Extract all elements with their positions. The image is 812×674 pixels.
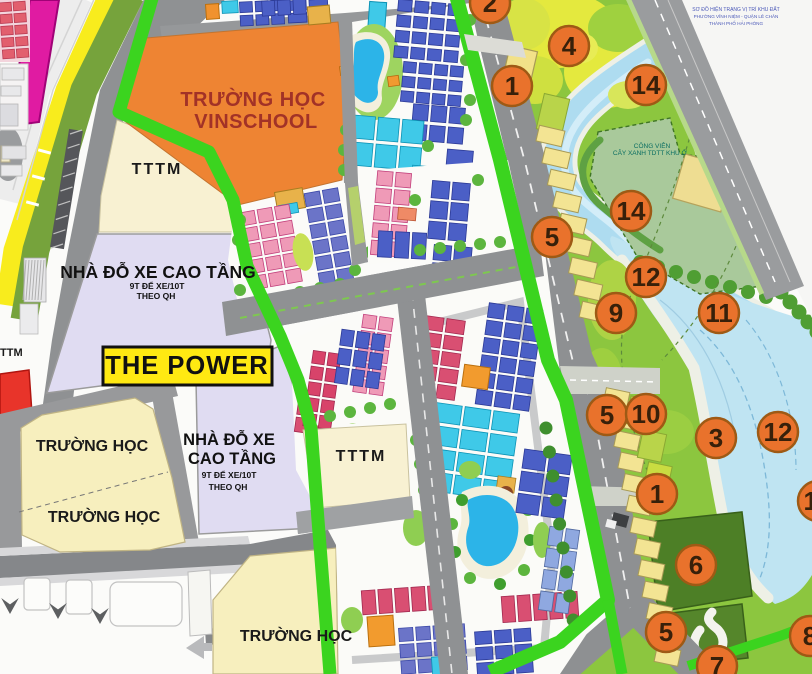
svg-text:4: 4	[562, 31, 577, 61]
svg-text:12: 12	[764, 417, 793, 447]
svg-text:CÔNG VIÊN: CÔNG VIÊN	[634, 141, 671, 150]
svg-text:3: 3	[709, 423, 723, 453]
svg-text:SƠ ĐỒ HIỆN TRẠNG VỊ TRÍ KHU ĐẤ: SƠ ĐỒ HIỆN TRẠNG VỊ TRÍ KHU ĐẤT	[692, 5, 779, 13]
svg-text:12: 12	[632, 262, 661, 292]
svg-text:TRƯỜNG HỌC: TRƯỜNG HỌC	[180, 87, 325, 111]
svg-text:TRƯỜNG HỌC: TRƯỜNG HỌC	[48, 507, 161, 526]
svg-text:8: 8	[803, 621, 812, 651]
svg-text:CÂY XANH TDTT KHU Ở: CÂY XANH TDTT KHU Ở	[613, 148, 688, 157]
svg-text:5: 5	[545, 222, 559, 252]
svg-text:THE POWER: THE POWER	[105, 352, 268, 380]
svg-text:13: 13	[804, 486, 812, 516]
svg-text:9: 9	[609, 298, 623, 328]
svg-text:NHÀ ĐỖ XE CAO TẦNG: NHÀ ĐỖ XE CAO TẦNG	[60, 261, 255, 282]
svg-text:PHƯỜNG VĨNH NIỆM - QUẬN LÊ CHÂ: PHƯỜNG VĨNH NIỆM - QUẬN LÊ CHÂN	[694, 12, 779, 19]
svg-text:THÀNH PHỐ HẢI PHÒNG: THÀNH PHỐ HẢI PHÒNG	[709, 20, 764, 26]
svg-text:TTM: TTM	[0, 347, 23, 359]
svg-text:7: 7	[710, 651, 724, 674]
svg-text:TRƯỜNG HỌC: TRƯỜNG HỌC	[240, 626, 353, 645]
svg-text:TTTM: TTTM	[132, 161, 183, 178]
svg-text:VINSCHOOL: VINSCHOOL	[194, 111, 317, 133]
svg-text:5: 5	[600, 400, 614, 430]
svg-text:TTTM: TTTM	[336, 448, 387, 465]
svg-text:NHÀ ĐỖ XE: NHÀ ĐỖ XE	[183, 430, 275, 449]
svg-text:6: 6	[689, 550, 703, 580]
svg-text:9T ĐỂ XE/10T: 9T ĐỂ XE/10T	[130, 280, 186, 291]
svg-text:10: 10	[632, 399, 661, 429]
svg-text:THEO QH: THEO QH	[209, 482, 248, 492]
svg-text:14: 14	[632, 70, 661, 100]
svg-text:1: 1	[650, 479, 664, 509]
svg-text:5: 5	[659, 617, 673, 647]
svg-text:1: 1	[505, 71, 519, 101]
svg-text:14: 14	[617, 196, 646, 226]
svg-text:THEO QH: THEO QH	[137, 291, 176, 301]
svg-text:TRƯỜNG HỌC: TRƯỜNG HỌC	[36, 436, 149, 455]
svg-text:CAO TẦNG: CAO TẦNG	[188, 449, 276, 468]
svg-text:2: 2	[483, 0, 497, 18]
svg-text:11: 11	[705, 298, 733, 328]
svg-text:9T ĐỂ XE/10T: 9T ĐỂ XE/10T	[202, 469, 258, 480]
